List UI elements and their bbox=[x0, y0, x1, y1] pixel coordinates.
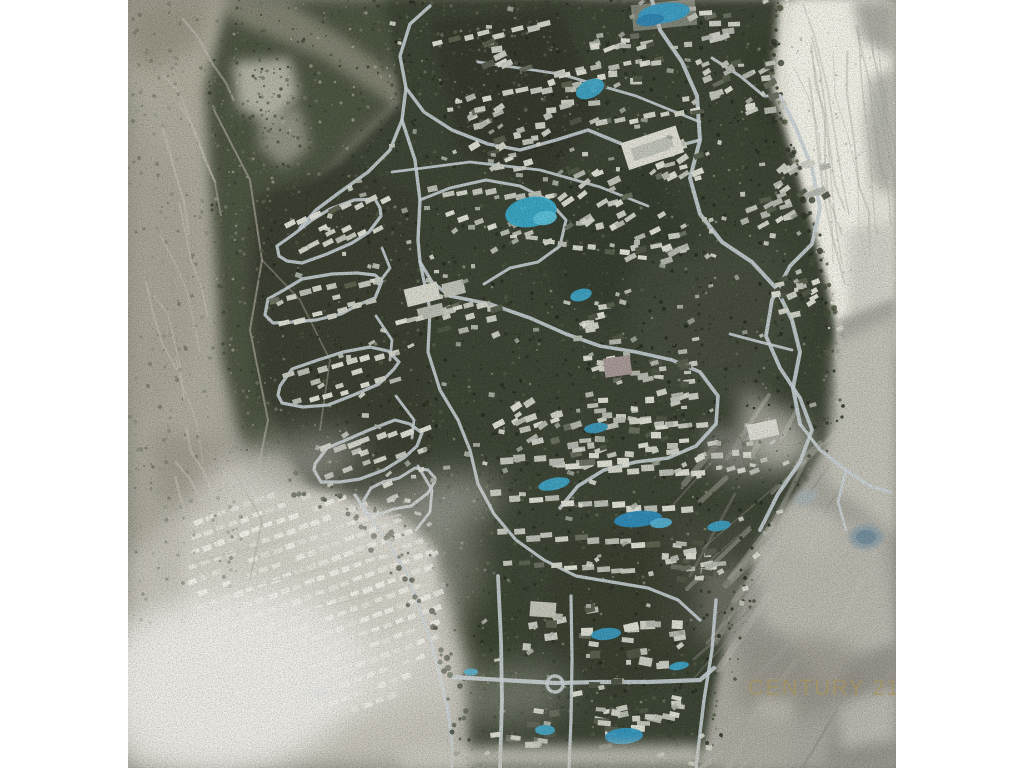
svg-text:CENTURY 21: CENTURY 21 bbox=[748, 675, 900, 700]
